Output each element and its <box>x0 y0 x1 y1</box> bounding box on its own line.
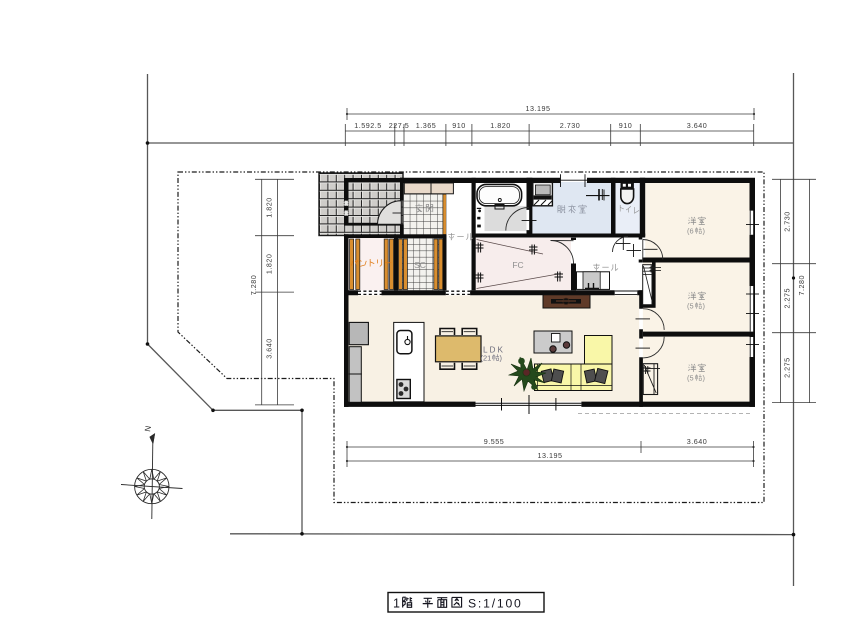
svg-text:2.730: 2.730 <box>783 211 792 232</box>
svg-text:FC: FC <box>512 260 523 270</box>
svg-text:2.275: 2.275 <box>783 288 792 309</box>
svg-text:): ) <box>703 227 705 236</box>
svg-text:9.555: 9.555 <box>484 437 505 446</box>
svg-text:2.730: 2.730 <box>560 121 581 130</box>
svg-text:7.280: 7.280 <box>797 275 806 296</box>
svg-text:): ) <box>703 374 705 383</box>
svg-text:1.820: 1.820 <box>265 254 274 275</box>
svg-text:2.275: 2.275 <box>783 357 792 378</box>
svg-text:SC: SC <box>414 260 426 270</box>
svg-text:1.820: 1.820 <box>490 121 511 130</box>
svg-text:3.640: 3.640 <box>265 338 274 359</box>
svg-text:910: 910 <box>619 121 633 130</box>
svg-text:7.280: 7.280 <box>249 275 258 296</box>
svg-text:): ) <box>500 354 502 363</box>
svg-text:1.365: 1.365 <box>416 121 437 130</box>
svg-text:(5: (5 <box>687 302 694 311</box>
svg-text:910: 910 <box>452 121 466 130</box>
svg-text:13.195: 13.195 <box>526 104 551 113</box>
svg-text:227.5: 227.5 <box>389 121 410 130</box>
svg-text:(6: (6 <box>687 227 694 236</box>
svg-text:1: 1 <box>393 597 400 611</box>
svg-text:(21: (21 <box>481 354 492 363</box>
svg-text:): ) <box>703 302 705 311</box>
svg-text:S:1/100: S:1/100 <box>468 597 523 611</box>
svg-text:(5: (5 <box>687 374 694 383</box>
svg-text:1.820: 1.820 <box>265 197 274 218</box>
svg-text:1.592.5: 1.592.5 <box>354 121 381 130</box>
svg-text:13.195: 13.195 <box>538 451 563 460</box>
svg-text:3.640: 3.640 <box>687 121 708 130</box>
svg-text:3.640: 3.640 <box>687 437 708 446</box>
